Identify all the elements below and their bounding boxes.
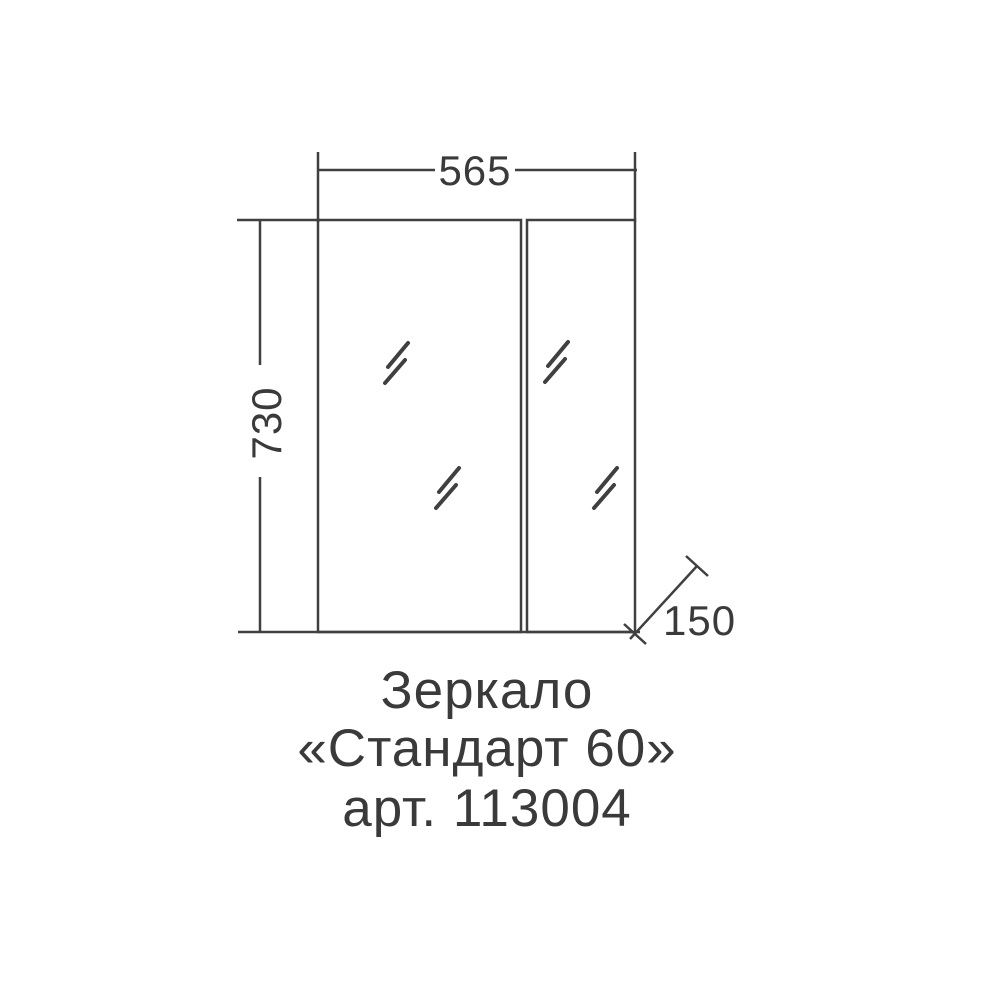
mirror-glass-hatch-icon: [545, 342, 568, 382]
mirror-glass-hatch-icon: [436, 468, 459, 508]
mirror-glass-hatch-icon: [594, 468, 617, 508]
width-dimension-label: 565: [438, 147, 511, 194]
product-caption-line1: Зеркало: [381, 661, 594, 720]
product-caption-line3: арт. 113004: [342, 779, 632, 838]
side-view-panel-outline: [527, 220, 635, 632]
mirror-glass-hatch-icon: [385, 343, 408, 383]
product-caption-line2: «Стандарт 60»: [297, 719, 676, 778]
drawing-strokes: [237, 152, 708, 644]
mirror-cabinet-dimension-drawing-page: 565 730 150 Зеркало «Стандарт 60» арт. 1…: [0, 0, 1000, 1000]
dimension-drawing-canvas: 565 730 150 Зеркало «Стандарт 60» арт. 1…: [0, 0, 1000, 1000]
depth-dimension-label: 150: [663, 597, 736, 644]
front-view-panel-outline: [318, 220, 521, 632]
height-dimension-label: 730: [243, 386, 290, 459]
